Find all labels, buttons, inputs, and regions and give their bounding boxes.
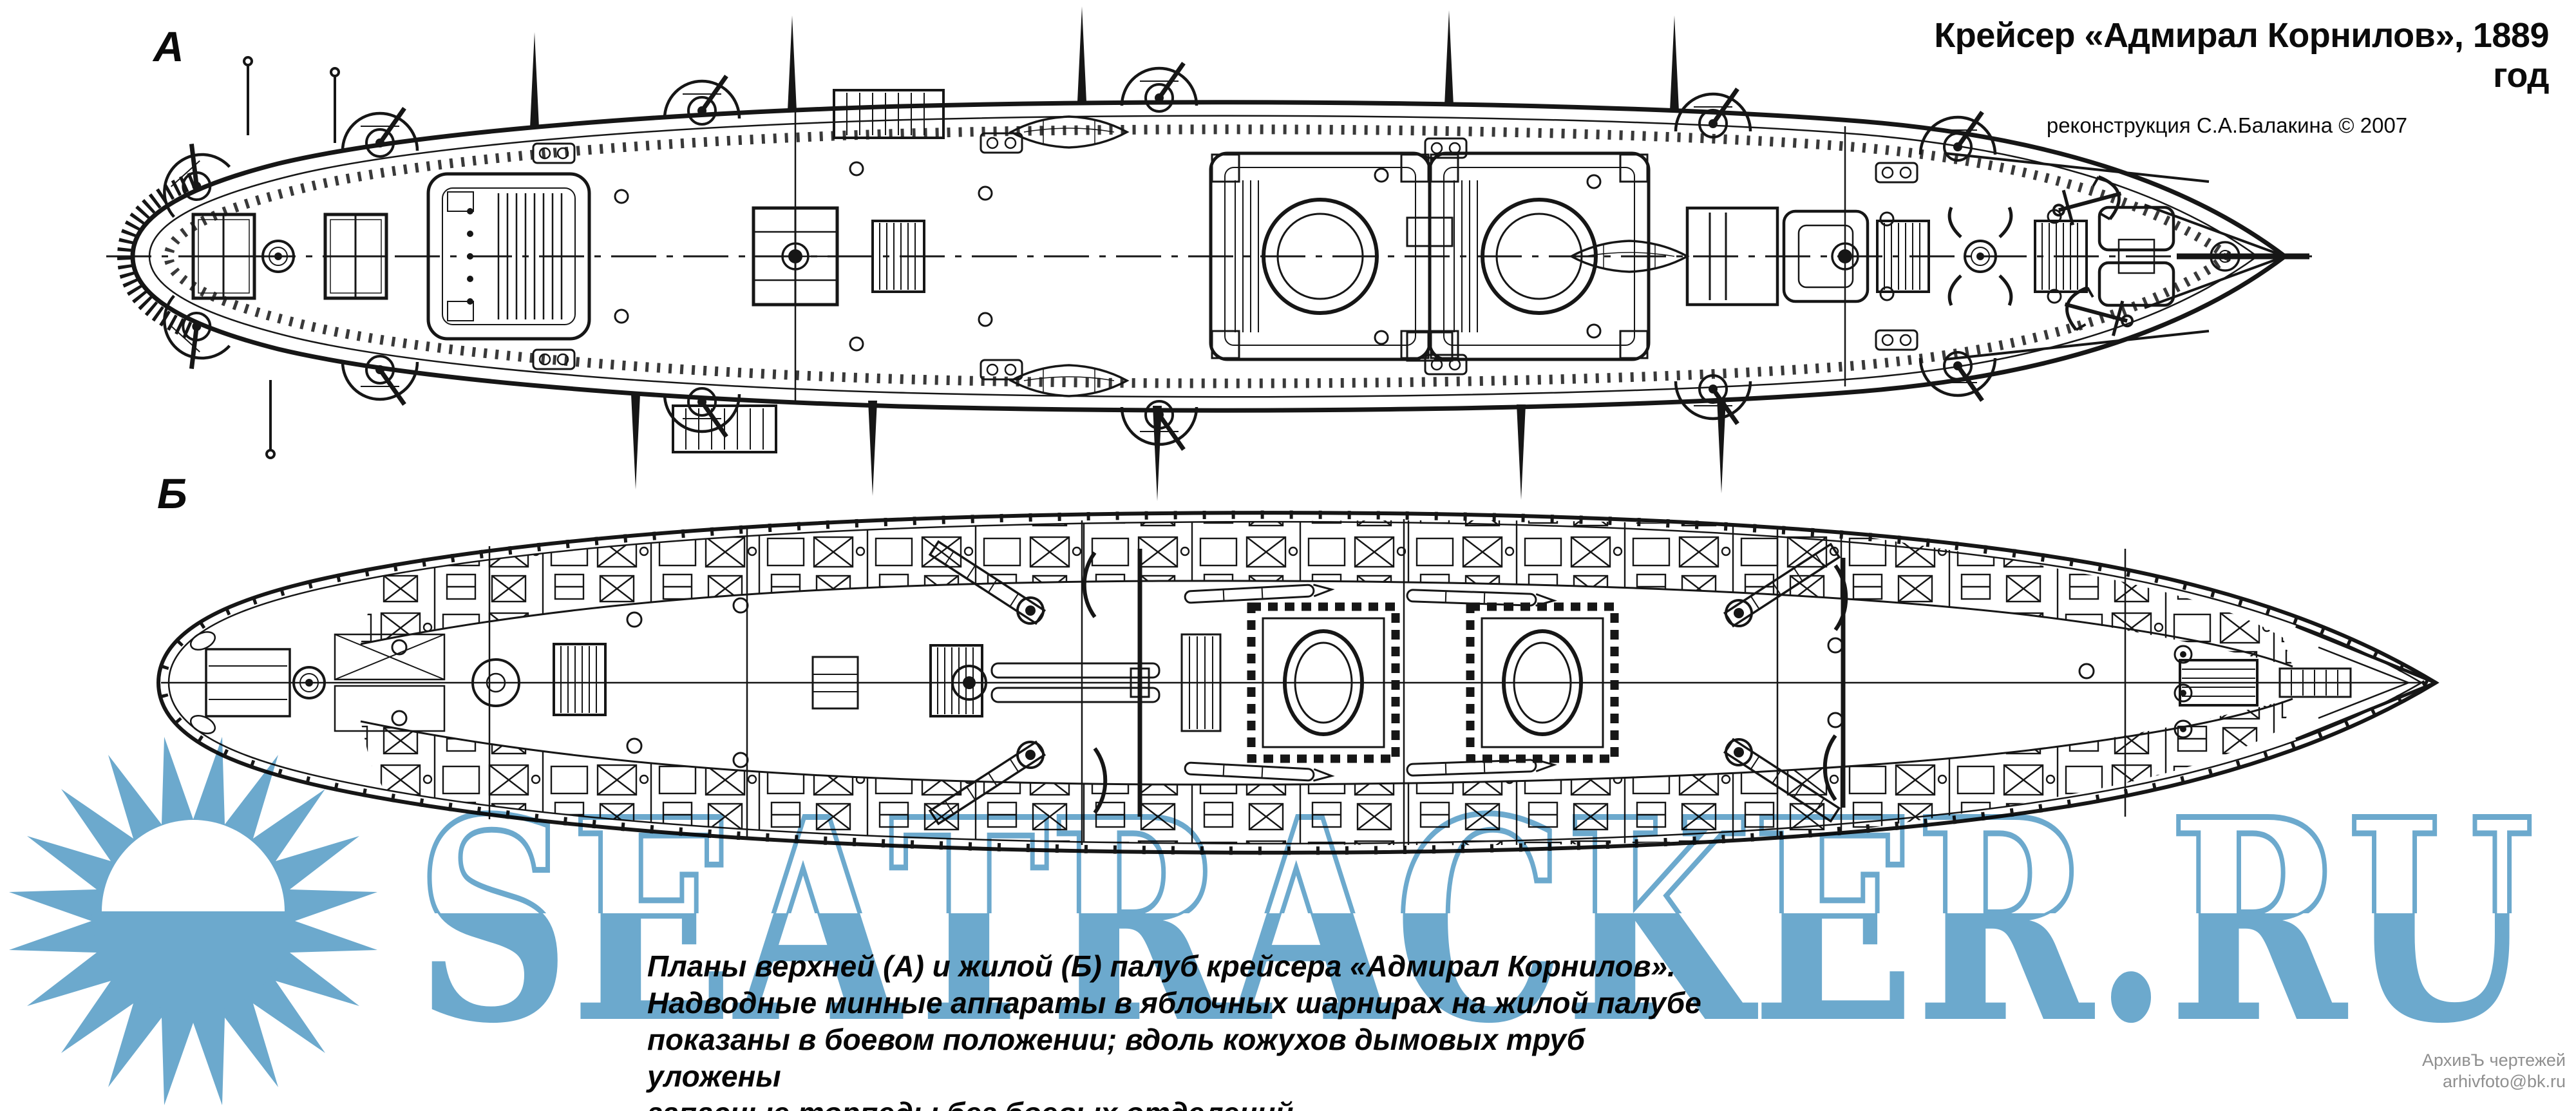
archive-credit-name: АрхивЪ чертежей xyxy=(2422,1050,2566,1071)
skylight-icon xyxy=(325,214,386,298)
funnel-casing-icon xyxy=(1430,153,1649,359)
spare-torpedo-icon xyxy=(1407,590,1554,607)
caption: Планы верхней (А) и жилой (Б) палуб крей… xyxy=(647,948,1710,1111)
blueprint-page: Крейсер «Адмирал Корнилов», 1889 год рек… xyxy=(0,0,2576,1111)
spare-torpedo-icon xyxy=(1407,759,1554,776)
davit-icon xyxy=(1444,10,1454,106)
title-block: Крейсер «Адмирал Корнилов», 1889 год рек… xyxy=(1905,15,2549,138)
caption-line: Надводные минные аппараты в яблочных шар… xyxy=(647,985,1710,1021)
davit-icon xyxy=(1717,398,1726,493)
skylight-icon xyxy=(193,214,254,298)
mooring-chock-icon xyxy=(1876,330,1917,350)
davit-icon xyxy=(631,394,640,489)
davit-icon xyxy=(1517,404,1526,500)
davit-icon xyxy=(1670,15,1679,111)
gun-sponson-icon xyxy=(146,292,233,377)
stairway-icon xyxy=(554,644,605,715)
mooring-chock-icon xyxy=(1876,163,1917,182)
mooring-chock-icon xyxy=(981,133,1022,153)
living-deck-plan xyxy=(158,513,2436,853)
boat-platform-icon xyxy=(834,90,943,138)
davit-icon xyxy=(1077,6,1086,102)
davit-icon xyxy=(788,15,797,111)
davit-icon xyxy=(868,401,877,496)
page-title: Крейсер «Адмирал Корнилов», 1889 год xyxy=(1905,15,2549,95)
spare-torpedo-icon xyxy=(1185,763,1332,782)
archive-credit-email: arhivfoto@bk.ru xyxy=(2422,1071,2566,1092)
plan-label-upper: А xyxy=(153,22,184,71)
davit-icon xyxy=(1153,406,1162,501)
caption-line: запасные торпеды без боевых отделений. xyxy=(647,1095,1710,1111)
page-subtitle: реконструкция С.А.Балакина © 2007 xyxy=(1905,113,2549,138)
spare-torpedo-icon xyxy=(1185,584,1332,603)
caption-line: Планы верхней (А) и жилой (Б) палуб крей… xyxy=(647,948,1710,985)
mooring-chock-icon xyxy=(981,360,1022,379)
ship-plans-drawing xyxy=(0,0,2576,1111)
caption-line: показаны в боевом положении; вдоль кожух… xyxy=(647,1021,1710,1095)
archive-credit: АрхивЪ чертежей arhivfoto@bk.ru xyxy=(2422,1050,2566,1092)
plan-label-lower: Б xyxy=(157,469,187,518)
davit-icon xyxy=(530,32,539,128)
